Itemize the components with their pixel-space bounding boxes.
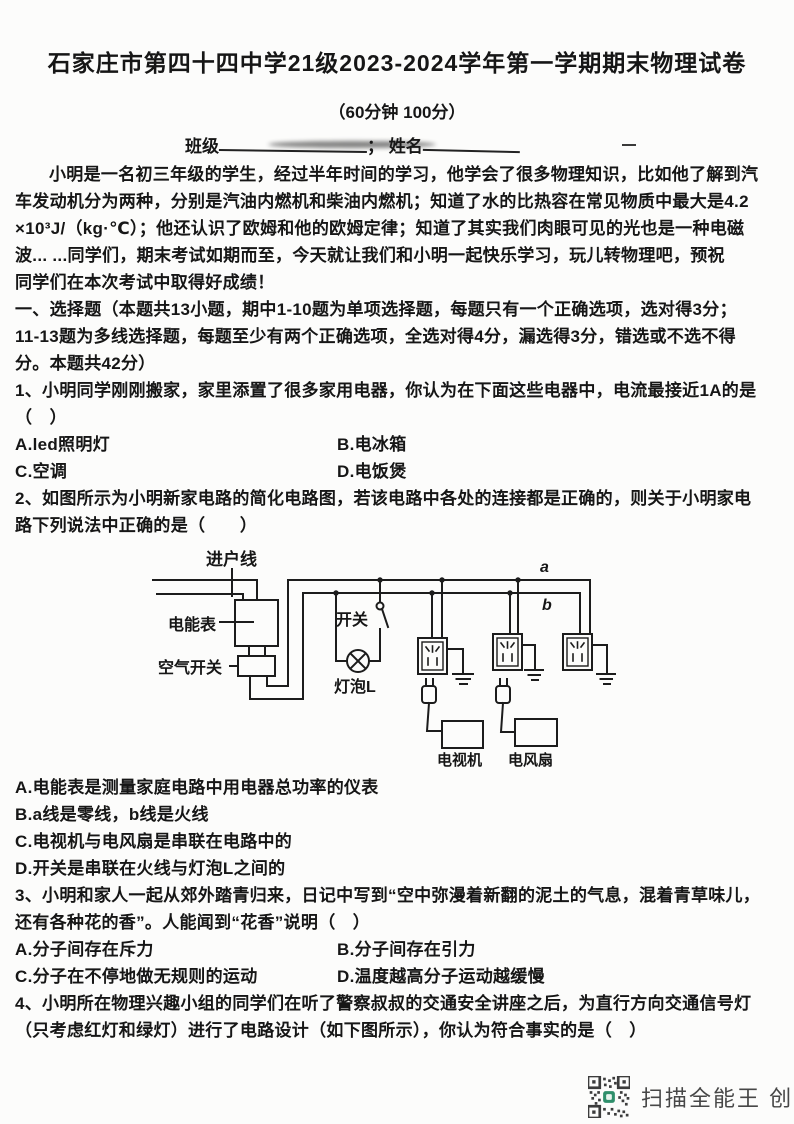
question-3: 3、小明和家人一起从郊外踏青归来，日记中写到“空中弥漫着新翻的泥土的气息，混着青… (0, 882, 794, 990)
intro-line-5: 同学们在本次考试中取得好成绩！ (15, 269, 786, 296)
question-4: 4、小明所在物理兴趣小组的同学们在听了警察叔叔的交通安全讲座之后，为直行方向交通… (0, 990, 794, 1044)
q3-option-d: D.温度越高分子运动越缓慢 (337, 967, 545, 986)
q2-option-d: D.开关是串联在火线与灯泡L之间的 (15, 855, 786, 882)
wire-a-label: a (540, 559, 549, 576)
section-line-2: 11-13题为多线选择题，每题至少有两个正确选项，全选对得4分，漏选得3分，错选… (15, 323, 786, 350)
intro-paragraph: 小明是一名初三年级的学生，经过半年时间的学习，他学会了很多物理知识，比如他了解到… (0, 161, 794, 296)
air-switch-label: 空气开关 (158, 658, 222, 677)
duration-score: （60分钟 100分） (0, 98, 794, 123)
bulb-label: 灯泡L (334, 677, 376, 696)
household-circuit-figure: 进户线 电能表 空气开关 a b (150, 541, 680, 774)
fan-plug-and-cord (496, 679, 515, 732)
stray-dash-mark (622, 144, 636, 146)
q1-answer-blank: （ ） (15, 404, 786, 431)
q2-option-a: A.电能表是测量家庭电路中用电器总功率的仪表 (15, 774, 786, 801)
scan-smudge-artifact (268, 141, 436, 148)
q1-text-line-1: 1、小明同学刚刚搬家，家里添置了很多家用电器，你认为在下面这些电器中，电流最接近… (15, 377, 786, 404)
ground-symbol-1 (447, 649, 473, 684)
qr-code-icon (588, 1076, 630, 1118)
incoming-line-label: 进户线 (206, 549, 257, 569)
air-switch-box (230, 646, 275, 676)
exam-paper-page: 石家庄市第四十四中学21级2023-2024学年第一学期期末物理试卷 （60分钟… (0, 0, 794, 1124)
scanner-watermark: 扫描全能王 创建 (588, 1076, 794, 1118)
intro-line-3: ×10³J/（kg·℃）；他还认识了欧姆和他的欧姆定律；知道了其实我们肉眼可见的… (15, 215, 786, 242)
q1-options-row-1: A.led照明灯B.电冰箱 (15, 431, 786, 458)
wall-socket-1 (418, 580, 447, 674)
section-one-header: 一、选择题（本题共13小题，期中1-10题为单项选择题，每题只有一个正确选项，选… (0, 296, 794, 377)
q2-option-c: C.电视机与电风扇是串联在电路中的 (15, 828, 786, 855)
q3-options-row-1: A.分子间存在斥力B.分子间存在引力 (15, 936, 786, 963)
wire-b-label: b (542, 597, 552, 614)
fan-label: 电风扇 (508, 751, 553, 769)
ground-symbol-2 (522, 645, 543, 680)
tv-box (442, 721, 483, 748)
class-label: 班级 (185, 137, 219, 156)
energy-meter-box (220, 600, 278, 646)
question-2: 2、如图所示为小明新家电路的简化电路图，若该电路中各处的连接都是正确的，则关于小… (0, 485, 794, 539)
q3-option-a: A.分子间存在斥力 (15, 936, 337, 963)
fan-box (515, 719, 557, 746)
incoming-service-lines (153, 569, 257, 600)
q1-option-b: B.电冰箱 (337, 435, 407, 454)
tv-plug-and-cord (422, 679, 442, 731)
energy-meter-label: 电能表 (168, 615, 217, 634)
section-line-3: 分。本题共42分） (15, 350, 786, 377)
wall-socket-3 (563, 634, 592, 670)
q1-option-c: C.空调 (15, 458, 337, 485)
question-2-options: A.电能表是测量家庭电路中用电器总功率的仪表 B.a线是零线，b线是火线 C.电… (0, 774, 794, 882)
section-line-1: 一、选择题（本题共13小题，期中1-10题为单项选择题，每题只有一个正确选项，选… (15, 296, 786, 323)
q2-text-line-1: 2、如图所示为小明新家电路的简化电路图，若该电路中各处的连接都是正确的，则关于小… (15, 485, 786, 512)
intro-line-2: 车发动机分为两种，分别是汽油内燃机和柴油内燃机；知道了水的比热容在常见物质中最大… (15, 188, 786, 215)
q3-options-row-2: C.分子在不停地做无规则的运动D.温度越高分子运动越缓慢 (15, 963, 786, 990)
q3-text-line-2: 还有各种花的香”。人能闻到“花香”说明（ ） (15, 909, 786, 936)
q3-option-b: B.分子间存在引力 (337, 940, 476, 959)
switch-label: 开关 (336, 610, 368, 629)
q3-option-c: C.分子在不停地做无规则的运动 (15, 963, 337, 990)
intro-line-4: 波... ...同学们，期末考试如期而至，今天就让我们和小明一起快乐学习，玩儿转… (15, 242, 786, 269)
paper-title: 石家庄市第四十四中学21级2023-2024学年第一学期期末物理试卷 (0, 0, 794, 78)
tv-label: 电视机 (437, 751, 482, 769)
q3-text-line-1: 3、小明和家人一起从郊外踏青归来，日记中写到“空中弥漫着新翻的泥土的气息，混着青… (15, 882, 786, 909)
q1-options-row-2: C.空调D.电饭煲 (15, 458, 786, 485)
q4-text-line-1: 4、小明所在物理兴趣小组的同学们在听了警察叔叔的交通安全讲座之后，为直行方向交通… (15, 990, 786, 1017)
question-1: 1、小明同学刚刚搬家，家里添置了很多家用电器，你认为在下面这些电器中，电流最接近… (0, 377, 794, 485)
q1-option-a: A.led照明灯 (15, 431, 337, 458)
intro-line-1: 小明是一名初三年级的学生，经过半年时间的学习，他学会了很多物理知识，比如他了解到… (15, 161, 786, 188)
name-blank-field (423, 134, 520, 153)
ground-symbol-3 (592, 645, 615, 684)
q1-option-d: D.电饭煲 (337, 462, 407, 481)
q2-option-b: B.a线是零线，b线是火线 (15, 801, 786, 828)
q4-text-line-2: （只考虑红灯和绿灯）进行了电路设计（如下图所示），你认为符合事实的是（ ） (15, 1017, 786, 1044)
q2-text-line-2: 路下列说法中正确的是（ ） (15, 512, 786, 539)
watermark-text: 扫描全能王 创建 (641, 1081, 794, 1113)
circuit-diagram: 进户线 电能表 空气开关 a b (150, 541, 680, 774)
bulb-symbol (336, 593, 380, 672)
